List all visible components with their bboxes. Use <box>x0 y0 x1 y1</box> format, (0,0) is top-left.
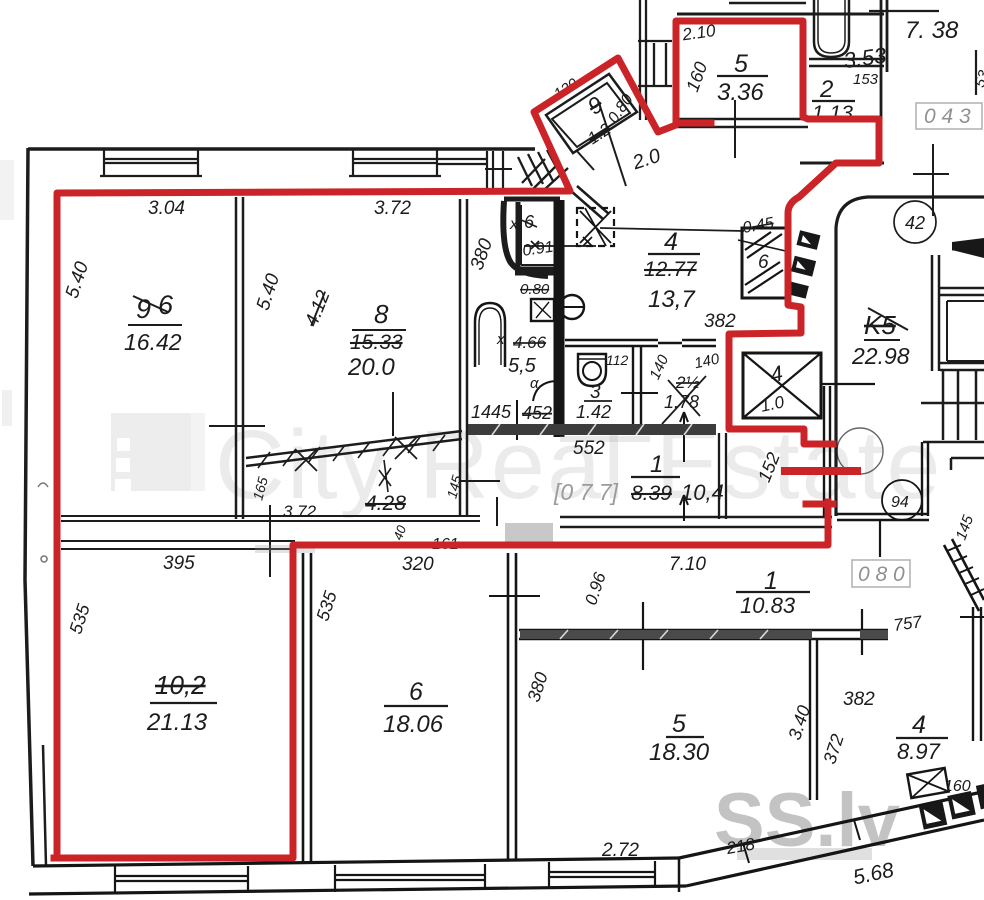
svg-text:6: 6 <box>158 290 174 320</box>
svg-text:4: 4 <box>768 360 785 387</box>
svg-text:4.28: 4.28 <box>365 492 406 515</box>
svg-text:372: 372 <box>819 732 847 767</box>
svg-text:0.91: 0.91 <box>521 239 554 260</box>
svg-text:3.04: 3.04 <box>148 198 185 219</box>
svg-text:1: 1 <box>764 567 778 595</box>
svg-text:5.40: 5.40 <box>62 259 94 301</box>
svg-text:7.10: 7.10 <box>669 554 706 575</box>
svg-text:0.80: 0.80 <box>605 91 637 126</box>
svg-text:16.42: 16.42 <box>124 329 182 355</box>
svg-text:452: 452 <box>522 403 552 423</box>
svg-text:[0 7 7]: [0 7 7] <box>553 479 619 505</box>
svg-text:6: 6 <box>758 252 769 273</box>
svg-text:0.96: 0.96 <box>581 570 609 608</box>
svg-text:7. 38: 7. 38 <box>905 17 959 44</box>
svg-text:380: 380 <box>523 670 551 705</box>
svg-text:3.72: 3.72 <box>283 502 317 521</box>
svg-text:18.06: 18.06 <box>383 711 444 738</box>
svg-text:5,5: 5,5 <box>508 355 537 377</box>
svg-text:18.30: 18.30 <box>649 739 710 766</box>
svg-text:8.39: 8.39 <box>631 482 672 505</box>
svg-text:380: 380 <box>467 236 498 273</box>
svg-text:1445: 1445 <box>471 402 512 422</box>
svg-text:20.0: 20.0 <box>347 354 395 381</box>
svg-text:5: 5 <box>672 710 686 738</box>
svg-text:0 4 3: 0 4 3 <box>924 105 971 128</box>
svg-text:535: 535 <box>65 601 94 637</box>
svg-text:4.12: 4.12 <box>301 287 334 330</box>
svg-text:395: 395 <box>163 553 195 574</box>
svg-text:2: 2 <box>819 76 833 103</box>
svg-text:140: 140 <box>646 352 672 382</box>
svg-text:15.33: 15.33 <box>350 331 403 354</box>
svg-text:3.72: 3.72 <box>374 198 411 219</box>
svg-text:112: 112 <box>606 352 629 368</box>
svg-text:3: 3 <box>590 382 601 403</box>
svg-text:145: 145 <box>953 512 978 542</box>
svg-text:10.83: 10.83 <box>740 593 796 618</box>
svg-text:94: 94 <box>891 494 909 511</box>
svg-text:4.66: 4.66 <box>513 333 547 352</box>
svg-text:2.0: 2.0 <box>629 145 663 175</box>
svg-text:382: 382 <box>704 311 736 332</box>
svg-text:320: 320 <box>402 554 434 575</box>
svg-text:552: 552 <box>573 438 605 459</box>
svg-text:α: α <box>530 375 539 392</box>
svg-text:10,4: 10,4 <box>681 480 724 505</box>
svg-text:x: x <box>509 216 519 233</box>
svg-text:x: x <box>496 331 505 348</box>
svg-text:2½: 2½ <box>675 373 700 392</box>
svg-text:13,7: 13,7 <box>648 286 696 313</box>
svg-text:8.97: 8.97 <box>897 739 941 764</box>
svg-text:2.72: 2.72 <box>601 840 639 861</box>
svg-text:42: 42 <box>905 213 925 233</box>
svg-text:40: 40 <box>390 523 409 542</box>
svg-text:1.42: 1.42 <box>576 402 611 422</box>
svg-text:0.80: 0.80 <box>520 281 550 298</box>
svg-text:5.40: 5.40 <box>253 271 285 313</box>
svg-text:22.98: 22.98 <box>851 343 910 369</box>
svg-text:10,2: 10,2 <box>155 670 206 700</box>
svg-text:5: 5 <box>734 50 748 78</box>
svg-text:160: 160 <box>944 778 971 795</box>
svg-text:4: 4 <box>664 228 678 256</box>
svg-text:535: 535 <box>312 588 341 624</box>
svg-text:21.13: 21.13 <box>146 709 208 736</box>
svg-text:4: 4 <box>912 711 926 739</box>
svg-text:3.36: 3.36 <box>717 79 764 106</box>
svg-text:53: 53 <box>971 68 984 90</box>
svg-text:0 8 0: 0 8 0 <box>858 563 905 586</box>
svg-text:160: 160 <box>682 59 711 94</box>
svg-text:5.68: 5.68 <box>851 858 896 889</box>
svg-text:757: 757 <box>892 612 923 635</box>
svg-text:8: 8 <box>374 299 389 329</box>
svg-text:153: 153 <box>853 71 879 88</box>
svg-text:382: 382 <box>843 689 875 710</box>
svg-text:1: 1 <box>650 451 663 478</box>
svg-text:6: 6 <box>409 678 423 706</box>
svg-text:12.77: 12.77 <box>644 258 698 281</box>
svg-text:140: 140 <box>693 350 722 372</box>
